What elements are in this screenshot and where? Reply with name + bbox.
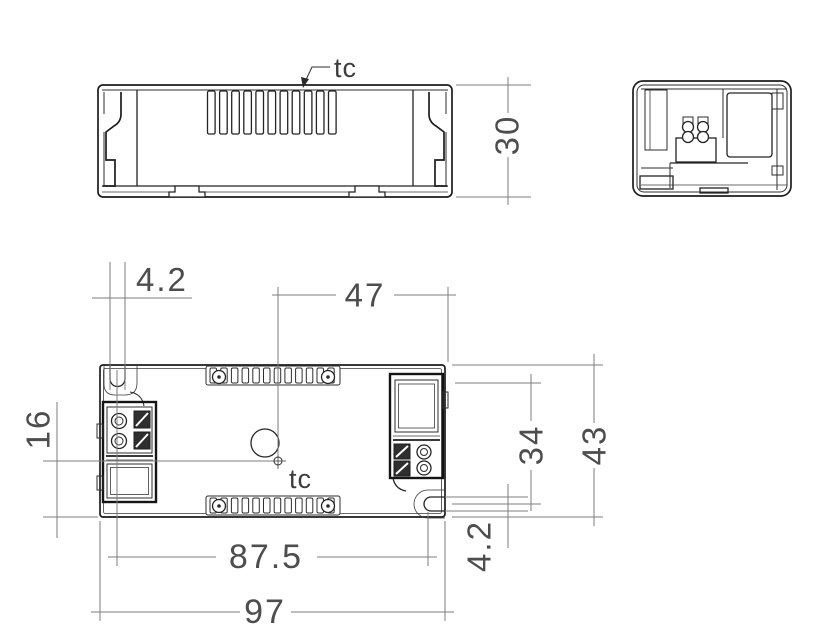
side-view-feet <box>169 186 385 197</box>
wire-entry <box>112 414 127 429</box>
vent-slot <box>208 91 216 134</box>
vent-slot <box>292 91 300 134</box>
dim-slot-width-top: 4.2 <box>92 261 192 390</box>
centerline-to-bottom-text: 16 <box>20 409 57 450</box>
wire-entry <box>112 434 127 449</box>
height-dim-text: 30 <box>489 115 526 156</box>
vent-slot <box>256 91 264 134</box>
vent-slot <box>304 91 312 134</box>
drawing-canvas: tc 30 <box>0 0 814 641</box>
vent-slot <box>316 91 324 134</box>
end-view-terminal <box>670 117 748 188</box>
tc-to-right-slot-text: 47 <box>345 277 386 314</box>
top-view-vent-strip-bottom <box>206 496 340 515</box>
side-view-left-endcap <box>103 90 137 186</box>
vent-slot <box>244 91 252 134</box>
vent-slot <box>232 91 240 134</box>
mounting-slot-right <box>393 478 445 518</box>
leader-arrowhead <box>301 77 309 88</box>
slot-width-top-text: 4.2 <box>136 261 188 298</box>
side-view-right-endcap <box>413 90 447 186</box>
dim-mounting-distance: 87.5 <box>108 370 437 576</box>
terminal-block-right <box>390 374 448 478</box>
screw-terminal <box>134 411 150 449</box>
wire-entry <box>417 461 431 475</box>
tc-leader-side: tc <box>301 53 357 88</box>
slot-width-right-text: 4.2 <box>461 520 498 572</box>
side-view: tc 30 <box>98 53 531 205</box>
technical-drawing: tc 30 <box>0 0 814 641</box>
screw-terminal <box>394 444 410 476</box>
side-view-tc-label: tc <box>334 53 357 83</box>
vent-slot <box>220 91 228 134</box>
end-view-right-panel <box>723 89 783 190</box>
vent-slot <box>329 91 337 134</box>
vent-slot <box>268 91 276 134</box>
top-view: tc 4.2 47 16 <box>20 261 613 631</box>
side-view-vents <box>208 91 337 134</box>
dim-slot-width-right: 4.2 <box>445 484 528 572</box>
dim-centerline-to-bottom: 16 <box>20 402 99 538</box>
body-length-text: 97 <box>244 593 286 631</box>
mounting-distance-text: 87.5 <box>229 538 303 576</box>
top-view-vent-strip-top <box>206 366 340 385</box>
dim-slot-offset: 34 <box>452 374 550 511</box>
wire-entry <box>417 445 431 459</box>
end-view <box>633 81 791 196</box>
slot-offset-text: 34 <box>513 425 550 466</box>
dim-tc-to-right-slot: 47 <box>272 277 456 363</box>
hole-circle <box>251 429 279 457</box>
vent-slot <box>280 91 288 134</box>
end-view-left-panel <box>640 89 787 189</box>
terminal-block-left <box>97 402 156 502</box>
top-view-tc-label: tc <box>289 464 312 494</box>
body-width-text: 43 <box>576 425 613 466</box>
dim-height-30: 30 <box>456 77 531 205</box>
